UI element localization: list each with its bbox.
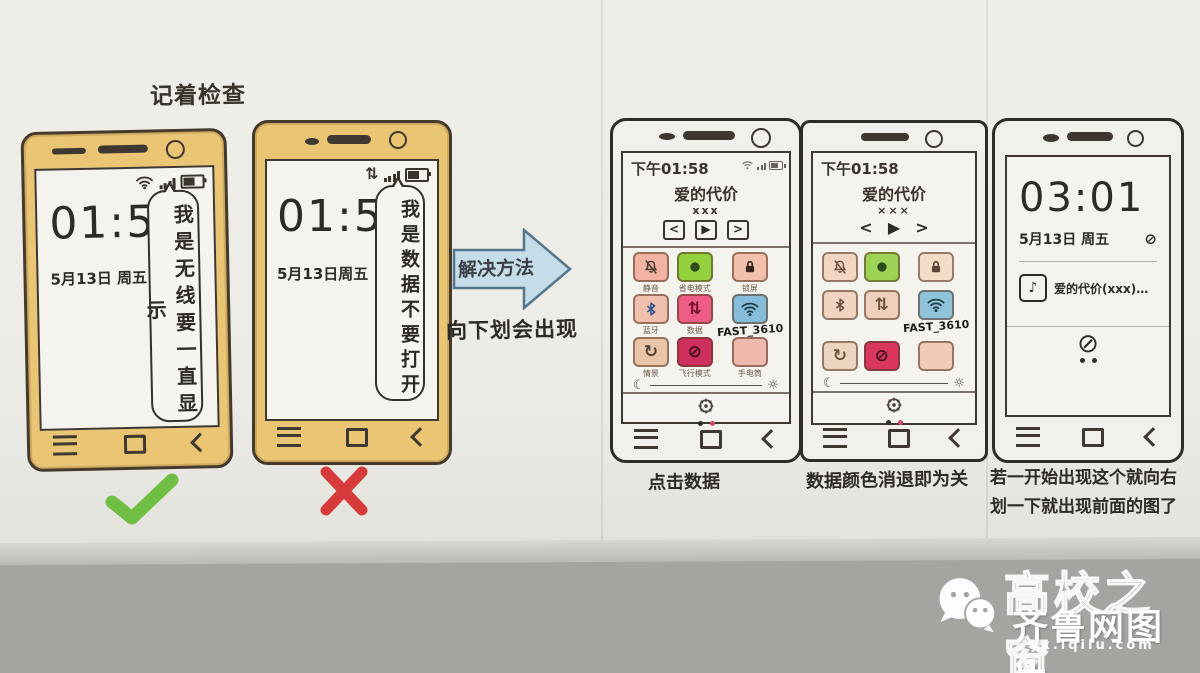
song-subtitle: ××× xyxy=(821,204,967,217)
speaker-slot xyxy=(98,145,148,154)
arrow-subtext: 向下划会出现 xyxy=(446,313,579,345)
battery-icon xyxy=(180,174,204,188)
next-button[interactable]: > xyxy=(913,220,931,236)
speaker-slot xyxy=(659,133,675,140)
quick-setting-cell: 省电模式 xyxy=(673,252,717,294)
quick-setting-cell xyxy=(903,252,969,282)
caption-line-2: 划一下就出现前面的图了 xyxy=(990,493,1200,522)
prev-button[interactable]: < xyxy=(857,220,875,236)
do-not-disturb-area: ⊘ xyxy=(1007,326,1169,363)
data-arrows-icon: ⇅ xyxy=(365,166,378,182)
caption-phone4: 数据颜色消退即为关 xyxy=(806,465,968,494)
camera-icon xyxy=(166,140,185,159)
quick-settings-grid: 静音省电模式锁屏蓝牙⇅数据FAST_3610↻情景⊘飞行模式手电筒 xyxy=(623,248,789,379)
speaker-slot xyxy=(305,138,319,145)
home-nav-icon xyxy=(1082,428,1104,447)
menu-nav-icon xyxy=(823,428,847,448)
nav-bar xyxy=(255,424,449,450)
home-nav-icon xyxy=(346,428,368,447)
song-subtitle: xxx xyxy=(631,204,781,217)
phone-1: 01:58 5月13日 周五 我是无线要一直显示 xyxy=(20,128,233,472)
next-button[interactable]: > xyxy=(727,220,749,240)
gear-icon[interactable] xyxy=(696,396,716,416)
bluetooth-icon[interactable] xyxy=(822,290,858,320)
watermark-brand: 齐鲁网图片 xyxy=(1012,598,1200,673)
tile-label: 省电模式 xyxy=(673,283,717,294)
check-mark-icon xyxy=(100,468,184,526)
phone-3: 下午01:58 爱的代价 xxx < ▶ > 静音省电模式锁屏蓝牙⇅数据FAST… xyxy=(610,118,802,463)
back-nav-icon xyxy=(761,429,781,449)
data-arrows-icon[interactable]: ⇅ xyxy=(677,294,713,324)
phone-4: 下午01:58 爱的代价 ××× < ▶ > ⇅FAST_3610↻⊘ ☾ ☼ xyxy=(800,120,988,462)
quick-setting-cell xyxy=(819,290,861,333)
phone-2: ⇅ 01:58 5月13日周五 我是数据不要打开 xyxy=(252,120,452,465)
bell-slash-icon[interactable] xyxy=(822,252,858,282)
back-nav-icon xyxy=(190,433,210,453)
back-nav-icon xyxy=(410,427,430,447)
quick-setting-cell: ⊘ xyxy=(861,341,903,371)
phone-5: 03:01 5月13日 周五 ⊘ ♪ 爱的代价(xxx)… ⊘ xyxy=(992,118,1184,463)
block-icon: ⊘ xyxy=(1007,331,1169,357)
quick-setting-cell: ↻ xyxy=(819,341,861,371)
camera-icon xyxy=(1127,130,1144,147)
callout-bubble-data: 我是数据不要打开 xyxy=(375,185,425,401)
menu-nav-icon xyxy=(1016,427,1040,447)
nav-bar xyxy=(613,426,799,452)
lockscreen-date: 5月13日周五 xyxy=(277,263,368,284)
paper-crease xyxy=(601,0,603,548)
blob-icon[interactable] xyxy=(677,252,713,282)
play-button[interactable]: ▶ xyxy=(695,220,717,240)
brightness-slider[interactable]: ☾ ☼ xyxy=(813,375,975,391)
lockscreen-date-row: 5月13日 周五 ⊘ xyxy=(1019,229,1157,249)
quick-setting-cell: FAST_3610 xyxy=(903,290,969,333)
brightness-slider[interactable]: ☾ ☼ xyxy=(623,379,789,392)
bell-slash-icon[interactable] xyxy=(633,252,669,282)
block-icon[interactable]: ⊘ xyxy=(677,337,713,367)
back-nav-icon xyxy=(1143,427,1163,447)
gear-icon[interactable] xyxy=(884,395,904,415)
nav-bar xyxy=(995,424,1181,450)
tile-label: 情景 xyxy=(629,368,673,379)
media-controls: < ▶ > xyxy=(631,220,781,240)
home-nav-icon xyxy=(700,430,722,449)
wifi-icon[interactable] xyxy=(918,290,954,320)
callout-bubble-wifi: 我是无线要一直显示 xyxy=(147,189,204,422)
arrow-label: 解决方法 xyxy=(458,253,535,283)
callout-text: 我是数据不要打开 xyxy=(377,199,423,399)
rotate-icon[interactable]: ↻ xyxy=(822,341,858,371)
music-notification[interactable]: ♪ 爱的代价(xxx)… xyxy=(1019,261,1157,302)
lock-icon[interactable] xyxy=(732,252,768,282)
wifi-icon xyxy=(134,174,154,189)
blank-icon[interactable] xyxy=(732,337,768,367)
wifi-icon[interactable] xyxy=(732,294,768,324)
bluetooth-icon[interactable] xyxy=(633,294,669,324)
caption-phone5: 若一开始出现这个就向右 划一下就出现前面的图了 xyxy=(990,464,1200,522)
quick-setting-cell: 锁屏 xyxy=(717,252,783,294)
quick-setting-cell xyxy=(903,341,969,371)
nav-bar xyxy=(803,425,985,451)
quick-setting-cell: 手电筒 xyxy=(717,337,783,379)
music-note-icon: ♪ xyxy=(1019,274,1047,302)
back-nav-icon xyxy=(948,428,968,448)
speaker-slot xyxy=(1043,134,1059,142)
menu-nav-icon xyxy=(53,435,77,455)
moon-icon: ☾ xyxy=(823,377,835,390)
slider-track xyxy=(840,383,949,384)
wifi-icon xyxy=(741,160,754,170)
battery-icon xyxy=(405,168,429,182)
lockscreen-date: 5月13日 周五 xyxy=(1019,229,1109,249)
callout-text: 我是无线要一直显示 xyxy=(149,204,202,421)
shade-footer xyxy=(813,391,975,423)
slider-track xyxy=(650,385,763,386)
song-title: 爱的代价 xyxy=(821,180,967,207)
wifi-ssid-label: FAST_3610 xyxy=(902,318,969,336)
home-nav-icon xyxy=(124,434,146,453)
block-icon: ⊘ xyxy=(1144,230,1157,248)
quick-setting-cell: 蓝牙 xyxy=(629,294,673,337)
shade-footer xyxy=(623,392,789,424)
photo-of-hand-drawn-tutorial: 记着检查 01:58 5月13日 周五 我是无线要一直显示 xyxy=(0,0,1200,673)
lockscreen-clock: 03:01 xyxy=(1019,175,1157,221)
quick-setting-cell: ↻情景 xyxy=(629,337,673,379)
wechat-icon xyxy=(933,572,1003,644)
blob-icon[interactable] xyxy=(864,252,900,282)
notification-text: 爱的代价(xxx)… xyxy=(1054,280,1148,297)
menu-nav-icon xyxy=(277,427,301,447)
battery-icon xyxy=(769,161,783,170)
cross-mark-icon xyxy=(318,464,370,518)
shade-header: 下午01:58 爱的代价 xxx < ▶ > xyxy=(623,153,789,248)
tile-label: 静音 xyxy=(629,283,673,294)
camera-icon xyxy=(925,130,943,148)
sun-icon: ☼ xyxy=(767,379,779,392)
moon-icon: ☾ xyxy=(633,379,645,392)
lock-icon[interactable] xyxy=(918,252,954,282)
tile-label: 蓝牙 xyxy=(629,325,673,336)
rotate-icon[interactable]: ↻ xyxy=(633,337,669,367)
shade-header: 下午01:58 爱的代价 ××× < ▶ > xyxy=(813,153,975,244)
camera-icon xyxy=(751,128,771,148)
nav-bar xyxy=(30,429,231,459)
quick-setting-cell: ⇅数据 xyxy=(673,294,717,337)
prev-button[interactable]: < xyxy=(663,220,685,240)
top-note: 记着检查 xyxy=(150,75,247,111)
speaker-slot xyxy=(327,135,371,144)
block-icon[interactable]: ⊘ xyxy=(864,341,900,371)
quick-setting-cell: ⊘飞行模式 xyxy=(673,337,717,379)
tile-label: 锁屏 xyxy=(717,283,783,294)
speaker-slot xyxy=(683,131,735,140)
quick-setting-cell: FAST_3610 xyxy=(717,294,783,337)
shade-time: 下午01:58 xyxy=(821,158,967,179)
caption-phone3: 点击数据 xyxy=(648,467,720,494)
tile-label: 手电筒 xyxy=(717,368,783,379)
speaker-slot xyxy=(861,133,909,141)
quick-setting-cell: ⇅ xyxy=(861,290,903,333)
speaker-slot xyxy=(1067,132,1113,141)
tile-label: 数据 xyxy=(673,325,717,336)
camera-icon xyxy=(389,131,407,149)
quick-setting-cell: 静音 xyxy=(629,252,673,294)
song-title: 爱的代价 xyxy=(631,180,781,207)
status-bar xyxy=(741,160,783,170)
caption-line-1: 若一开始出现这个就向右 xyxy=(990,464,1200,493)
quick-setting-cell xyxy=(861,252,903,282)
sun-icon: ☼ xyxy=(953,377,965,390)
signal-bars-icon xyxy=(757,163,766,170)
watermark-url: yx.iqilu.com xyxy=(1030,638,1155,653)
quick-settings-grid: ⇅FAST_3610↻⊘ xyxy=(813,244,975,375)
speaker-slot xyxy=(52,148,86,155)
solution-arrow: 解决方法 xyxy=(452,228,574,310)
play-button[interactable]: ▶ xyxy=(885,220,903,236)
media-controls: < ▶ > xyxy=(821,220,967,236)
data-arrows-icon[interactable]: ⇅ xyxy=(864,290,900,320)
menu-nav-icon xyxy=(634,429,658,449)
quick-setting-cell xyxy=(819,252,861,282)
home-nav-icon xyxy=(888,429,910,448)
tile-label: 飞行模式 xyxy=(673,368,717,379)
lockscreen-date: 5月13日 周五 xyxy=(50,267,147,290)
blank-icon[interactable] xyxy=(918,341,954,371)
